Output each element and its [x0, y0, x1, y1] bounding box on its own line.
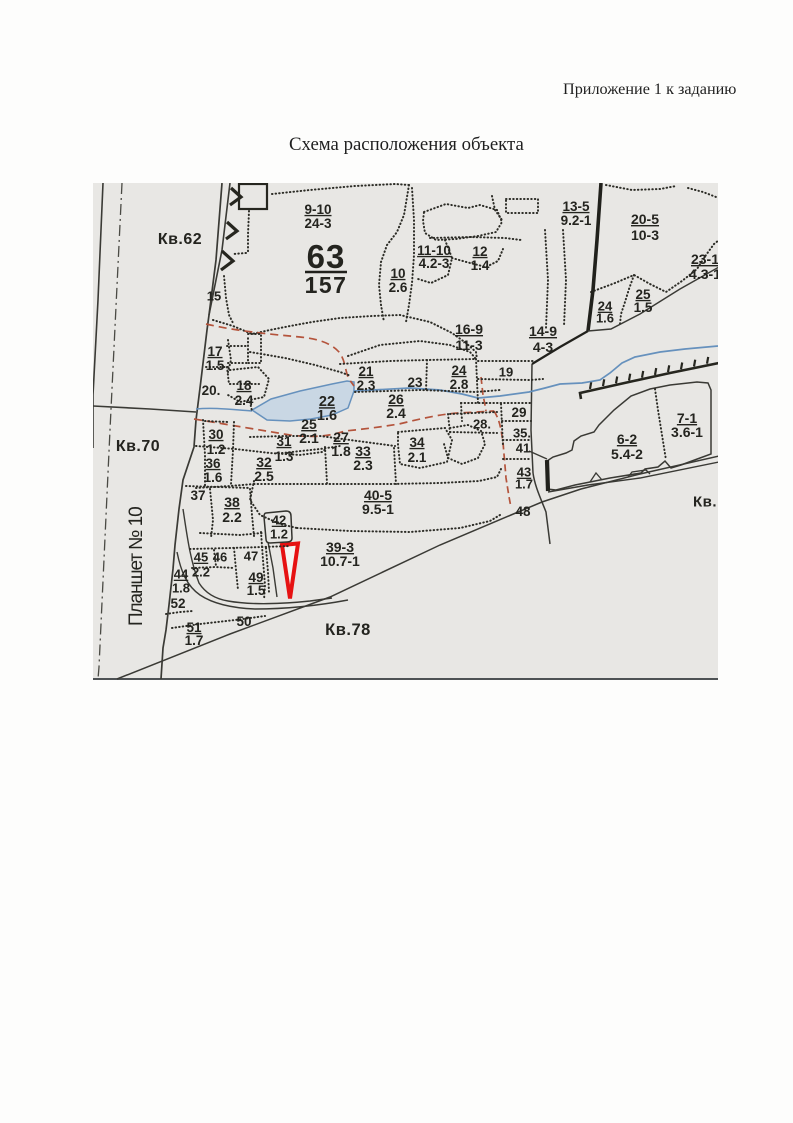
svg-text:2.6: 2.6 — [389, 280, 408, 295]
svg-text:16-9: 16-9 — [455, 321, 483, 337]
svg-text:2.2: 2.2 — [192, 565, 210, 580]
svg-text:1.2: 1.2 — [207, 442, 226, 457]
svg-text:50: 50 — [236, 614, 251, 629]
svg-text:Планшет № 10: Планшет № 10 — [126, 507, 147, 626]
svg-text:1.7: 1.7 — [185, 633, 204, 648]
svg-text:1.5: 1.5 — [206, 358, 225, 373]
svg-text:42: 42 — [272, 513, 286, 528]
svg-text:30: 30 — [208, 427, 223, 442]
svg-text:24: 24 — [451, 363, 467, 378]
svg-text:46: 46 — [213, 550, 227, 565]
svg-text:2.1: 2.1 — [299, 430, 319, 446]
svg-text:2.5: 2.5 — [254, 468, 274, 484]
svg-text:13-5: 13-5 — [562, 199, 590, 214]
svg-text:1.8: 1.8 — [172, 581, 190, 596]
svg-text:1.6: 1.6 — [317, 408, 337, 424]
svg-text:1.8: 1.8 — [331, 443, 351, 459]
svg-text:47: 47 — [244, 549, 258, 564]
svg-text:38: 38 — [224, 494, 240, 510]
svg-text:23-1: 23-1 — [691, 251, 718, 267]
svg-text:11-3: 11-3 — [455, 337, 482, 353]
svg-text:12: 12 — [472, 244, 487, 259]
svg-text:37: 37 — [190, 488, 205, 503]
svg-text:14-9: 14-9 — [529, 323, 557, 339]
svg-text:63: 63 — [307, 238, 346, 275]
svg-text:Кв.: Кв. — [693, 493, 717, 510]
svg-text:1.3: 1.3 — [275, 449, 294, 464]
svg-text:10.7-1: 10.7-1 — [320, 553, 360, 569]
svg-text:5.4-2: 5.4-2 — [611, 446, 643, 462]
svg-text:1.6: 1.6 — [596, 311, 614, 326]
svg-text:3.6-1: 3.6-1 — [671, 424, 703, 440]
svg-text:Кв.78: Кв.78 — [325, 621, 371, 639]
svg-text:1.7: 1.7 — [515, 477, 533, 492]
svg-text:28.: 28. — [473, 417, 491, 432]
svg-text:2.4: 2.4 — [235, 393, 254, 408]
svg-text:34: 34 — [409, 435, 425, 450]
svg-text:36: 36 — [205, 456, 221, 471]
svg-text:23: 23 — [407, 375, 423, 390]
svg-text:2.8: 2.8 — [450, 377, 469, 392]
svg-text:9.5-1: 9.5-1 — [362, 501, 394, 517]
svg-text:48: 48 — [515, 504, 531, 519]
svg-text:6-2: 6-2 — [617, 431, 637, 447]
svg-text:1.5: 1.5 — [634, 300, 653, 315]
svg-text:44: 44 — [174, 567, 189, 582]
svg-text:10-3: 10-3 — [631, 227, 659, 243]
svg-text:Кв.62: Кв.62 — [158, 231, 202, 248]
svg-text:41: 41 — [516, 441, 530, 456]
svg-text:2.1: 2.1 — [408, 450, 427, 465]
svg-text:18: 18 — [236, 378, 252, 393]
svg-text:2.3: 2.3 — [357, 378, 376, 393]
svg-text:1.4: 1.4 — [471, 258, 490, 273]
svg-text:2.2: 2.2 — [222, 509, 242, 525]
svg-text:35.: 35. — [513, 426, 531, 441]
svg-text:17: 17 — [207, 344, 222, 359]
svg-text:20.: 20. — [202, 383, 221, 398]
svg-text:2.4: 2.4 — [386, 405, 406, 421]
svg-text:29: 29 — [511, 405, 526, 420]
svg-text:9.2-1: 9.2-1 — [561, 213, 592, 228]
svg-text:10: 10 — [390, 266, 405, 281]
svg-text:4.2-3: 4.2-3 — [419, 256, 450, 271]
svg-text:Кв.70: Кв.70 — [116, 438, 160, 455]
svg-text:20-5: 20-5 — [631, 211, 659, 227]
svg-text:9-10: 9-10 — [304, 202, 331, 217]
svg-text:52: 52 — [170, 596, 185, 611]
svg-text:24-3: 24-3 — [304, 216, 332, 231]
svg-text:19: 19 — [499, 365, 513, 380]
svg-text:1.6: 1.6 — [204, 470, 223, 485]
svg-text:4.3-1: 4.3-1 — [689, 266, 718, 282]
svg-text:2.3: 2.3 — [353, 457, 373, 473]
svg-text:21: 21 — [358, 364, 374, 379]
svg-text:4-3: 4-3 — [533, 339, 553, 355]
svg-text:1.2: 1.2 — [270, 527, 288, 542]
svg-text:1.5: 1.5 — [247, 583, 266, 598]
svg-text:31: 31 — [276, 434, 292, 449]
svg-text:45: 45 — [194, 550, 208, 565]
svg-text:15: 15 — [207, 289, 221, 304]
svg-text:157: 157 — [305, 272, 348, 298]
